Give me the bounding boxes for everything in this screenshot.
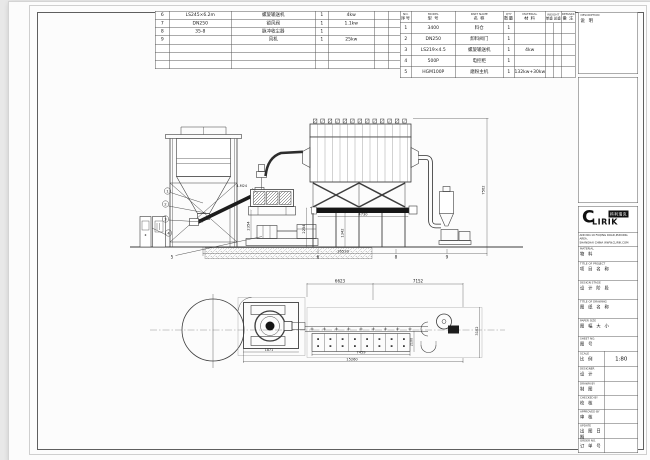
- dim-label: 4730: [358, 212, 368, 216]
- dim-label: 2354: [247, 221, 251, 231]
- fan-plan: [421, 314, 459, 353]
- dim-label: 2100: [410, 338, 414, 346]
- pulse-bag-dust-collector: [303, 119, 419, 247]
- mill-plan: [238, 298, 305, 356]
- dim-label: 16520: [337, 249, 350, 254]
- outlet-horn: [411, 148, 419, 168]
- dim-label: 7562: [482, 185, 486, 194]
- dim-label: 1342: [340, 228, 344, 237]
- balloon-number: 2: [164, 201, 167, 206]
- fan: [441, 230, 458, 241]
- control-cabinets: [140, 217, 166, 248]
- dim-label: 1871: [265, 348, 273, 352]
- mill-outlet-duct: [266, 152, 304, 176]
- dim-label: 6623: [335, 278, 346, 283]
- balloon-number: 3: [164, 216, 167, 221]
- balloon-number: 8: [395, 255, 398, 260]
- dim-label: 7152: [413, 278, 424, 283]
- dim-label: 3102: [475, 326, 479, 335]
- balloon-number: 5: [171, 255, 174, 260]
- anchor-bolt-note: 4-M24: [236, 184, 247, 188]
- plan-view: [150, 283, 505, 368]
- balloon-number: 6: [317, 255, 320, 260]
- balloon-number: 1: [166, 188, 169, 193]
- silo-plan: [182, 294, 244, 368]
- drawing-sheet-photo: 6LS245×6.2m螺旋输送机14kw7DN250锁风阀11.1kw835-8…: [0, 0, 650, 460]
- dim-label: 15260: [346, 358, 358, 362]
- balloon-number: 9: [446, 255, 449, 260]
- inlet-horn: [303, 148, 311, 168]
- fan-motor: [459, 232, 470, 241]
- dim-label: 7459: [356, 351, 366, 355]
- fan-and-stack: [419, 158, 472, 245]
- elevation-view: [130, 119, 523, 259]
- dim-label: 2254: [302, 224, 306, 234]
- technical-drawing: 7562 16520 4730 1342 2254 2354 6623 7152…: [0, 0, 650, 460]
